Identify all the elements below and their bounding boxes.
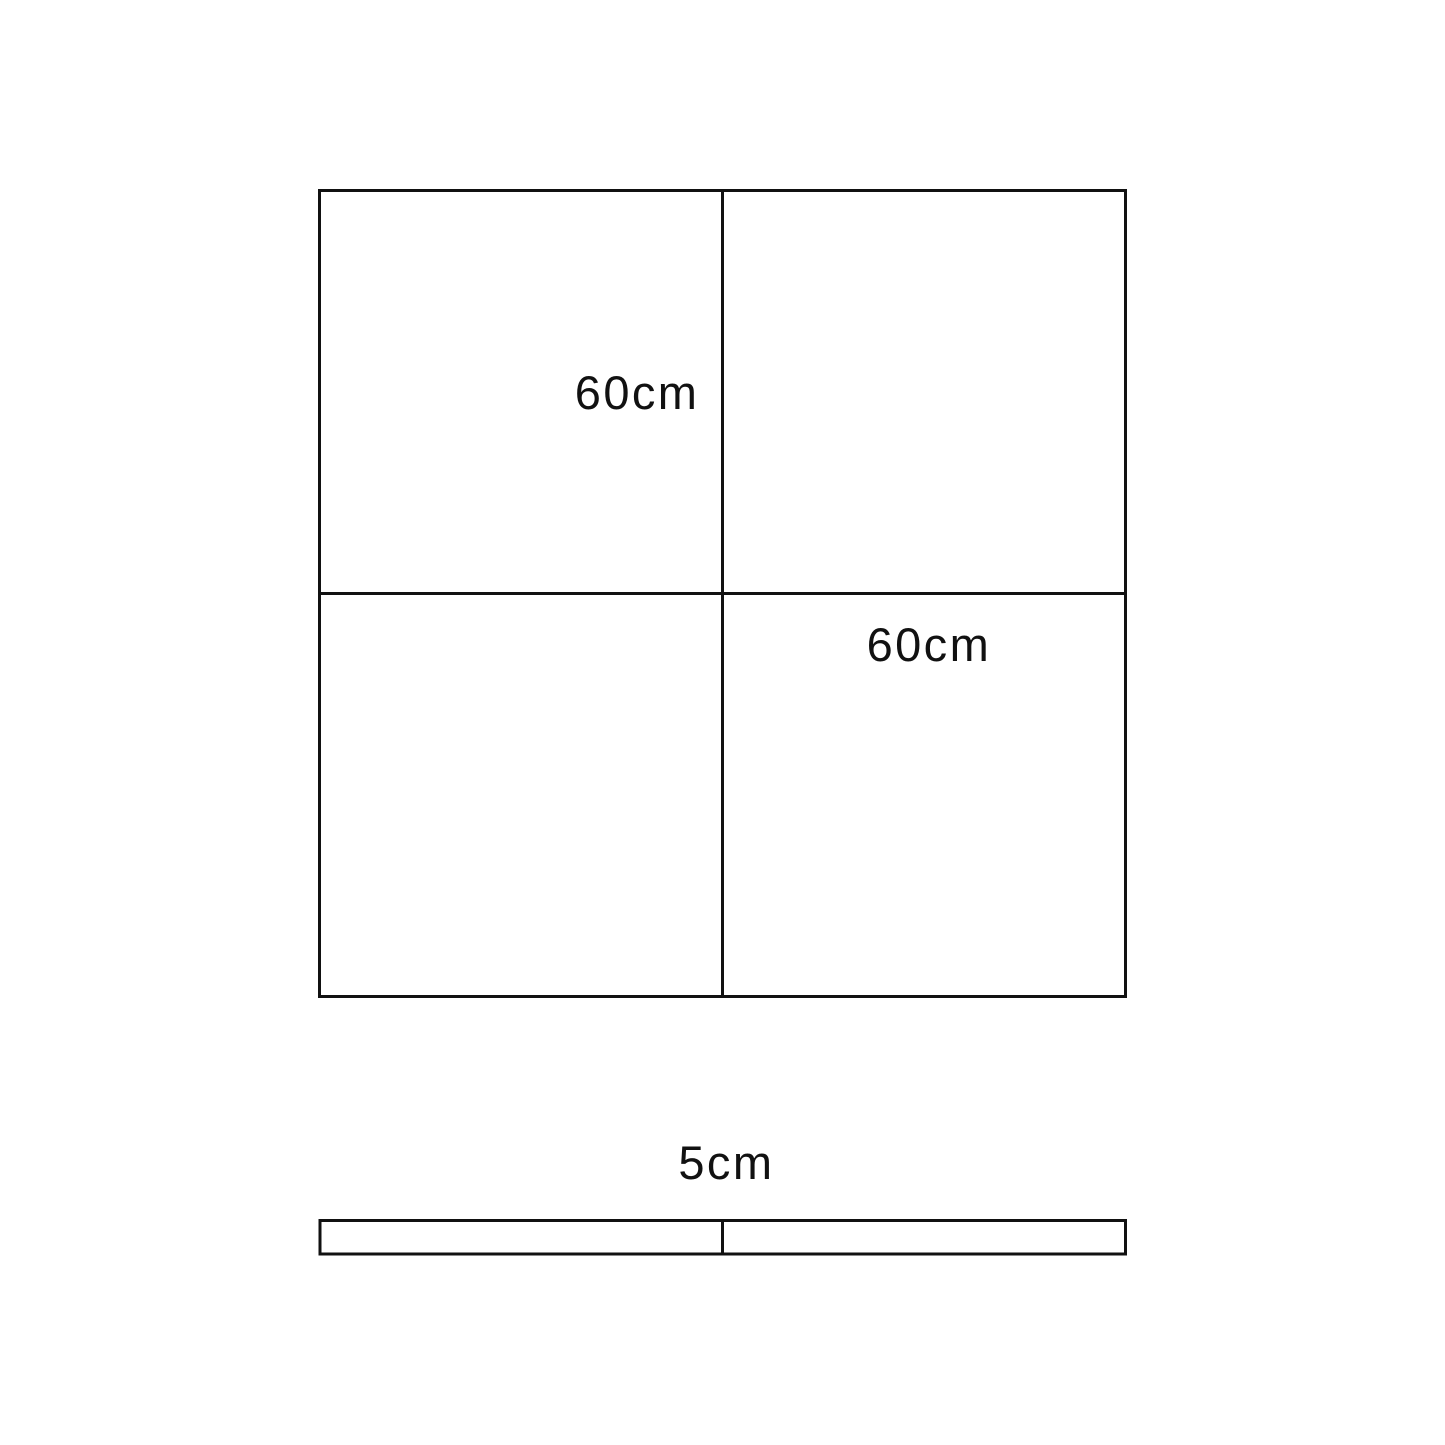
svg-text:60cm: 60cm [575, 366, 700, 419]
svg-text:60cm: 60cm [867, 618, 992, 671]
svg-text:5cm: 5cm [678, 1136, 774, 1189]
